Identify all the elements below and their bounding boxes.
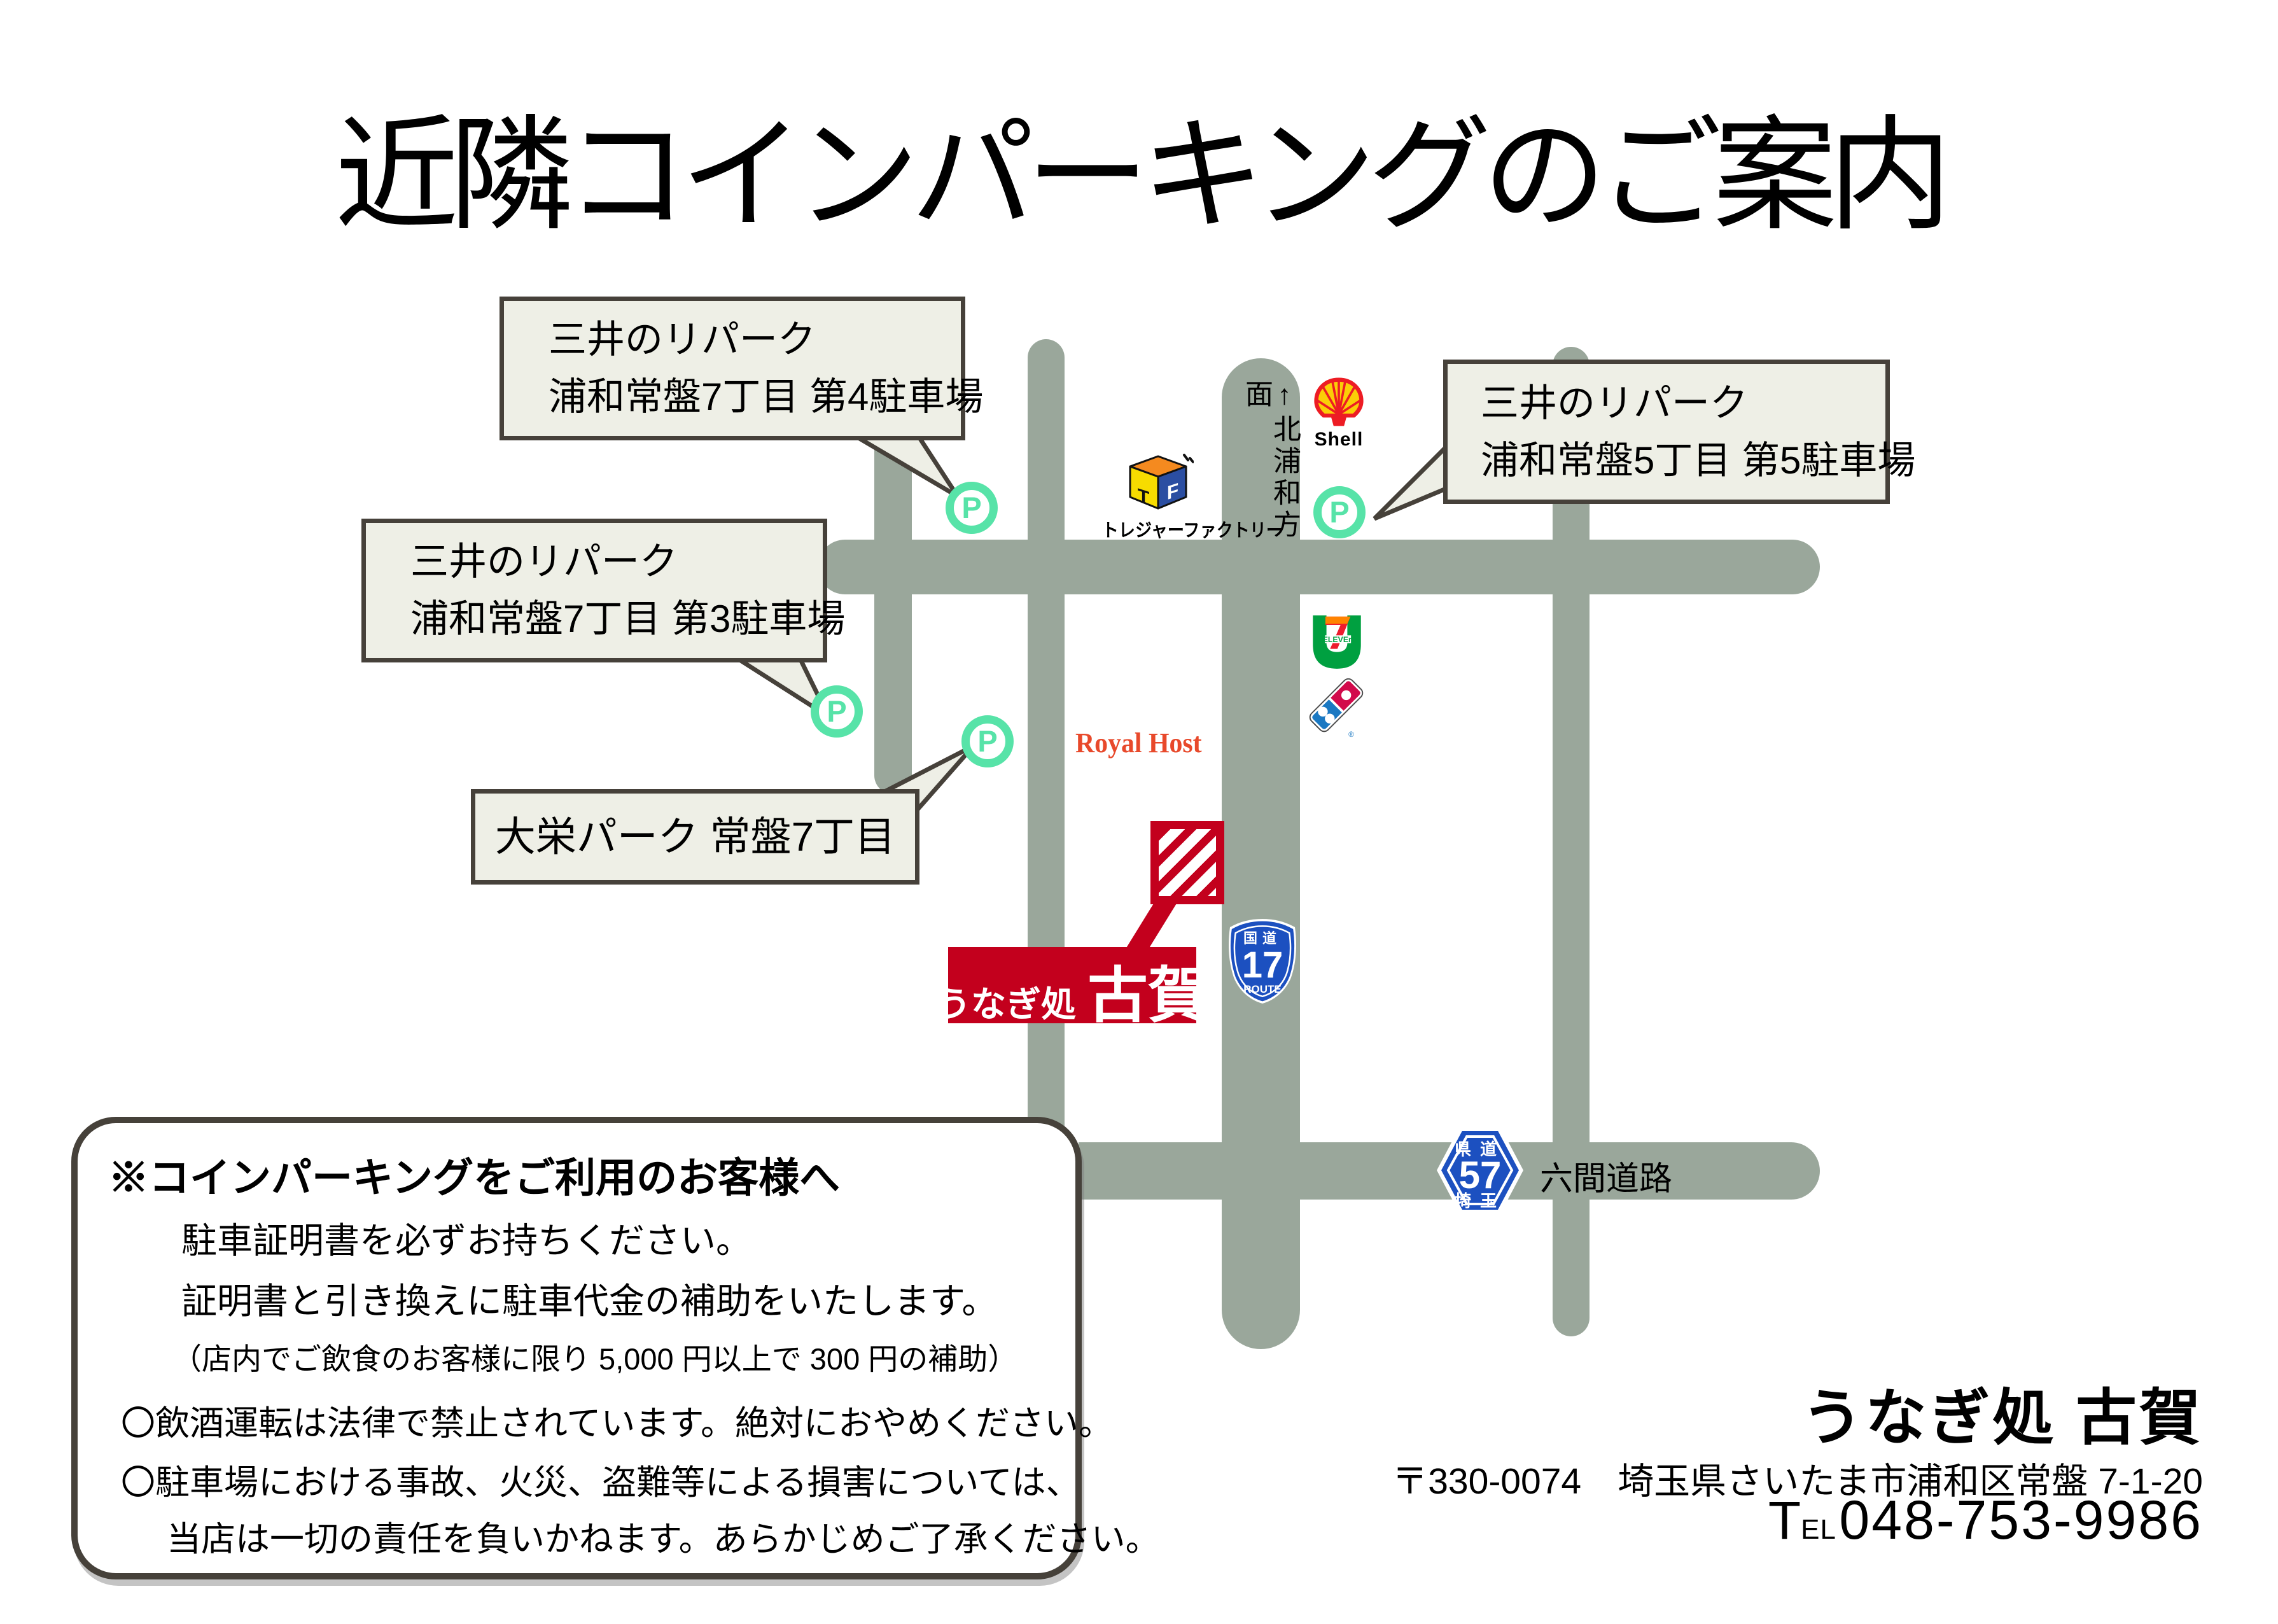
restaurant-name-small: うなぎ処 xyxy=(936,976,1076,1026)
restaurant-name-box: うなぎ処 古賀 xyxy=(948,947,1196,1023)
rokken-road-label: 六間道路 xyxy=(1540,1152,1672,1200)
treasure-factory: T F トレジャーファクトリー xyxy=(1096,453,1220,542)
footer-telephone: TEL 048-753-9986 xyxy=(1768,1489,2203,1552)
shell-label: Shell xyxy=(1310,429,1368,451)
parking-icon-daiei: P xyxy=(961,715,1014,767)
bubble-mitsui-repark-4: 三井のリパーク 浦和常盤7丁目 第4駐車場 xyxy=(500,297,965,440)
notice-heading: ※コインパーキングをご利用のお客様へ xyxy=(108,1145,840,1204)
dominos-icon: ® xyxy=(1304,673,1368,739)
route17-route-label: ROUTE xyxy=(1243,983,1282,995)
dominos-reg-mark: ® xyxy=(1348,731,1354,739)
bubble-3-line1: 三井のリパーク xyxy=(410,533,823,591)
bubble-daiei-park: 大栄パーク 常盤7丁目 xyxy=(471,789,919,885)
treasure-factory-cube-icon: T F xyxy=(1122,453,1194,512)
notice-line-4: 〇飲酒運転は法律で禁止されています。絶対におやめください。 xyxy=(121,1395,1113,1445)
seven-eleven-icon: ELEVEn xyxy=(1311,614,1363,670)
shell-icon xyxy=(1310,377,1368,428)
tel-number: 048-753-9986 xyxy=(1839,1490,2203,1551)
parking-icon-4: P xyxy=(946,482,998,534)
footer-shop-name: うなぎ処 古賀 xyxy=(1801,1368,2203,1457)
route-17-sign: 国道 17 ROUTE xyxy=(1227,918,1298,1005)
notice-line-1: 駐車証明書を必ずお持ちください。 xyxy=(181,1212,751,1264)
notice-line-6: 当店は一切の責任を負いかねます。あらかじめご了承ください。 xyxy=(167,1511,1160,1561)
bubble-5-line2: 浦和常盤5丁目 第5駐車場 xyxy=(1481,432,1885,489)
royal-host-label: Royal Host xyxy=(1075,727,1202,759)
page-title: 近隣コインパーキングのご案内 xyxy=(0,75,2278,255)
notice-line-5: 〇駐車場における事故、火災、盗難等による損害については、 xyxy=(121,1454,1080,1504)
tf-letter-f: F xyxy=(1167,479,1178,504)
restaurant-marker xyxy=(1150,821,1224,904)
route17-number: 17 xyxy=(1242,944,1283,986)
bubble-daiei-line1: 大栄パーク 常盤7丁目 xyxy=(495,806,895,867)
bubble-5-line1: 三井のリパーク xyxy=(1481,375,1885,432)
route-57-sign: 県道 57 埼玉 xyxy=(1434,1122,1526,1219)
treasure-factory-label: トレジャーファクトリー xyxy=(1102,515,1214,542)
seven-eleven-wordmark: ELEVEn xyxy=(1323,635,1353,644)
bubble-3-line2: 浦和常盤7丁目 第3駐車場 xyxy=(410,591,823,648)
parking-guide-flyer: ↑北浦和方面 三井のリパーク 浦和常盤7丁目 第4駐車場 三井のリパーク 浦和常… xyxy=(0,0,2278,1624)
tf-letter-t: T xyxy=(1138,484,1150,509)
restaurant-name-large: 古賀 xyxy=(1087,947,1208,1034)
tel-mark-el: EL xyxy=(1801,1514,1836,1545)
route57-number: 57 xyxy=(1459,1154,1502,1196)
bubble-mitsui-repark-5: 三井のリパーク 浦和常盤5丁目 第5駐車場 xyxy=(1443,360,1890,504)
route57-saitama-label: 埼玉 xyxy=(1455,1191,1506,1210)
notice-line-3: （店内でご飲食のお客様に限り 5,000 円以上で 300 円の補助） xyxy=(172,1334,1017,1378)
parking-icon-3: P xyxy=(811,685,863,738)
parking-icon-5: P xyxy=(1313,486,1366,538)
bubble-4-line1: 三井のリパーク xyxy=(549,311,961,368)
tel-mark-t: T xyxy=(1768,1490,1801,1550)
notice-line-2: 証明書と引き換えに駐車代金の補助をいたします。 xyxy=(181,1273,997,1324)
bubble-mitsui-repark-3: 三井のリパーク 浦和常盤7丁目 第3駐車場 xyxy=(361,519,827,662)
bubble-4-line2: 浦和常盤7丁目 第4駐車場 xyxy=(549,368,961,426)
shell-station: Shell xyxy=(1310,377,1368,451)
